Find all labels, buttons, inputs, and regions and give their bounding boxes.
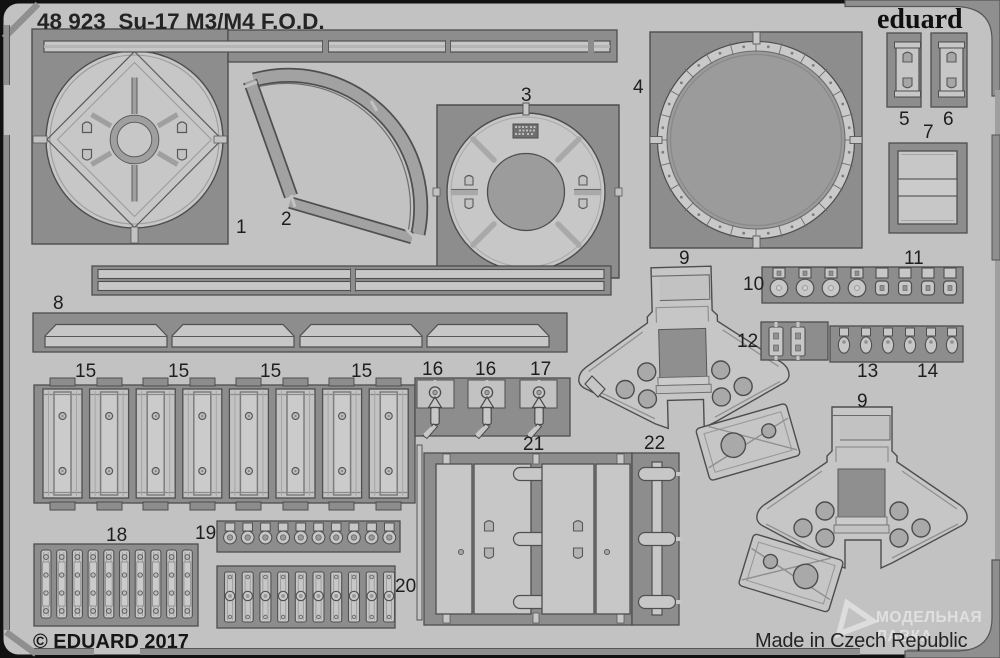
svg-text:9: 9	[857, 391, 868, 412]
svg-text:2: 2	[281, 209, 292, 230]
svg-text:22: 22	[644, 433, 665, 454]
svg-text:10: 10	[743, 274, 764, 295]
svg-text:Made in Czech Republic: Made in Czech Republic	[755, 630, 968, 652]
svg-text:© EDUARD 2017: © EDUARD 2017	[33, 631, 189, 653]
svg-text:13: 13	[857, 361, 878, 382]
svg-text:16: 16	[475, 359, 496, 380]
svg-text:8: 8	[53, 293, 64, 314]
svg-text:7: 7	[923, 122, 934, 143]
svg-text:15: 15	[168, 361, 189, 382]
svg-text:eduard: eduard	[877, 4, 963, 35]
svg-text:16: 16	[422, 359, 443, 380]
svg-text:14: 14	[917, 361, 939, 382]
svg-text:11: 11	[904, 248, 924, 269]
svg-text:1: 1	[236, 217, 247, 238]
svg-text:9: 9	[679, 248, 690, 269]
svg-text:48 923 Su-17 M3/M4 F.O.D.: 48 923 Su-17 M3/M4 F.O.D.	[37, 9, 325, 34]
svg-text:21: 21	[523, 434, 544, 455]
svg-text:19: 19	[195, 523, 216, 544]
svg-text:3: 3	[521, 85, 532, 106]
svg-text:15: 15	[351, 361, 372, 382]
svg-text:МОДЕЛЬНАЯ: МОДЕЛЬНАЯ	[876, 609, 982, 626]
svg-text:18: 18	[106, 525, 127, 546]
svg-text:5: 5	[899, 109, 910, 130]
svg-text:4: 4	[633, 77, 644, 98]
svg-text:20: 20	[395, 576, 416, 597]
svg-text:17: 17	[530, 359, 551, 380]
svg-text:12: 12	[737, 331, 758, 352]
svg-text:15: 15	[75, 361, 96, 382]
svg-text:6: 6	[943, 109, 954, 130]
svg-text:15: 15	[260, 361, 281, 382]
